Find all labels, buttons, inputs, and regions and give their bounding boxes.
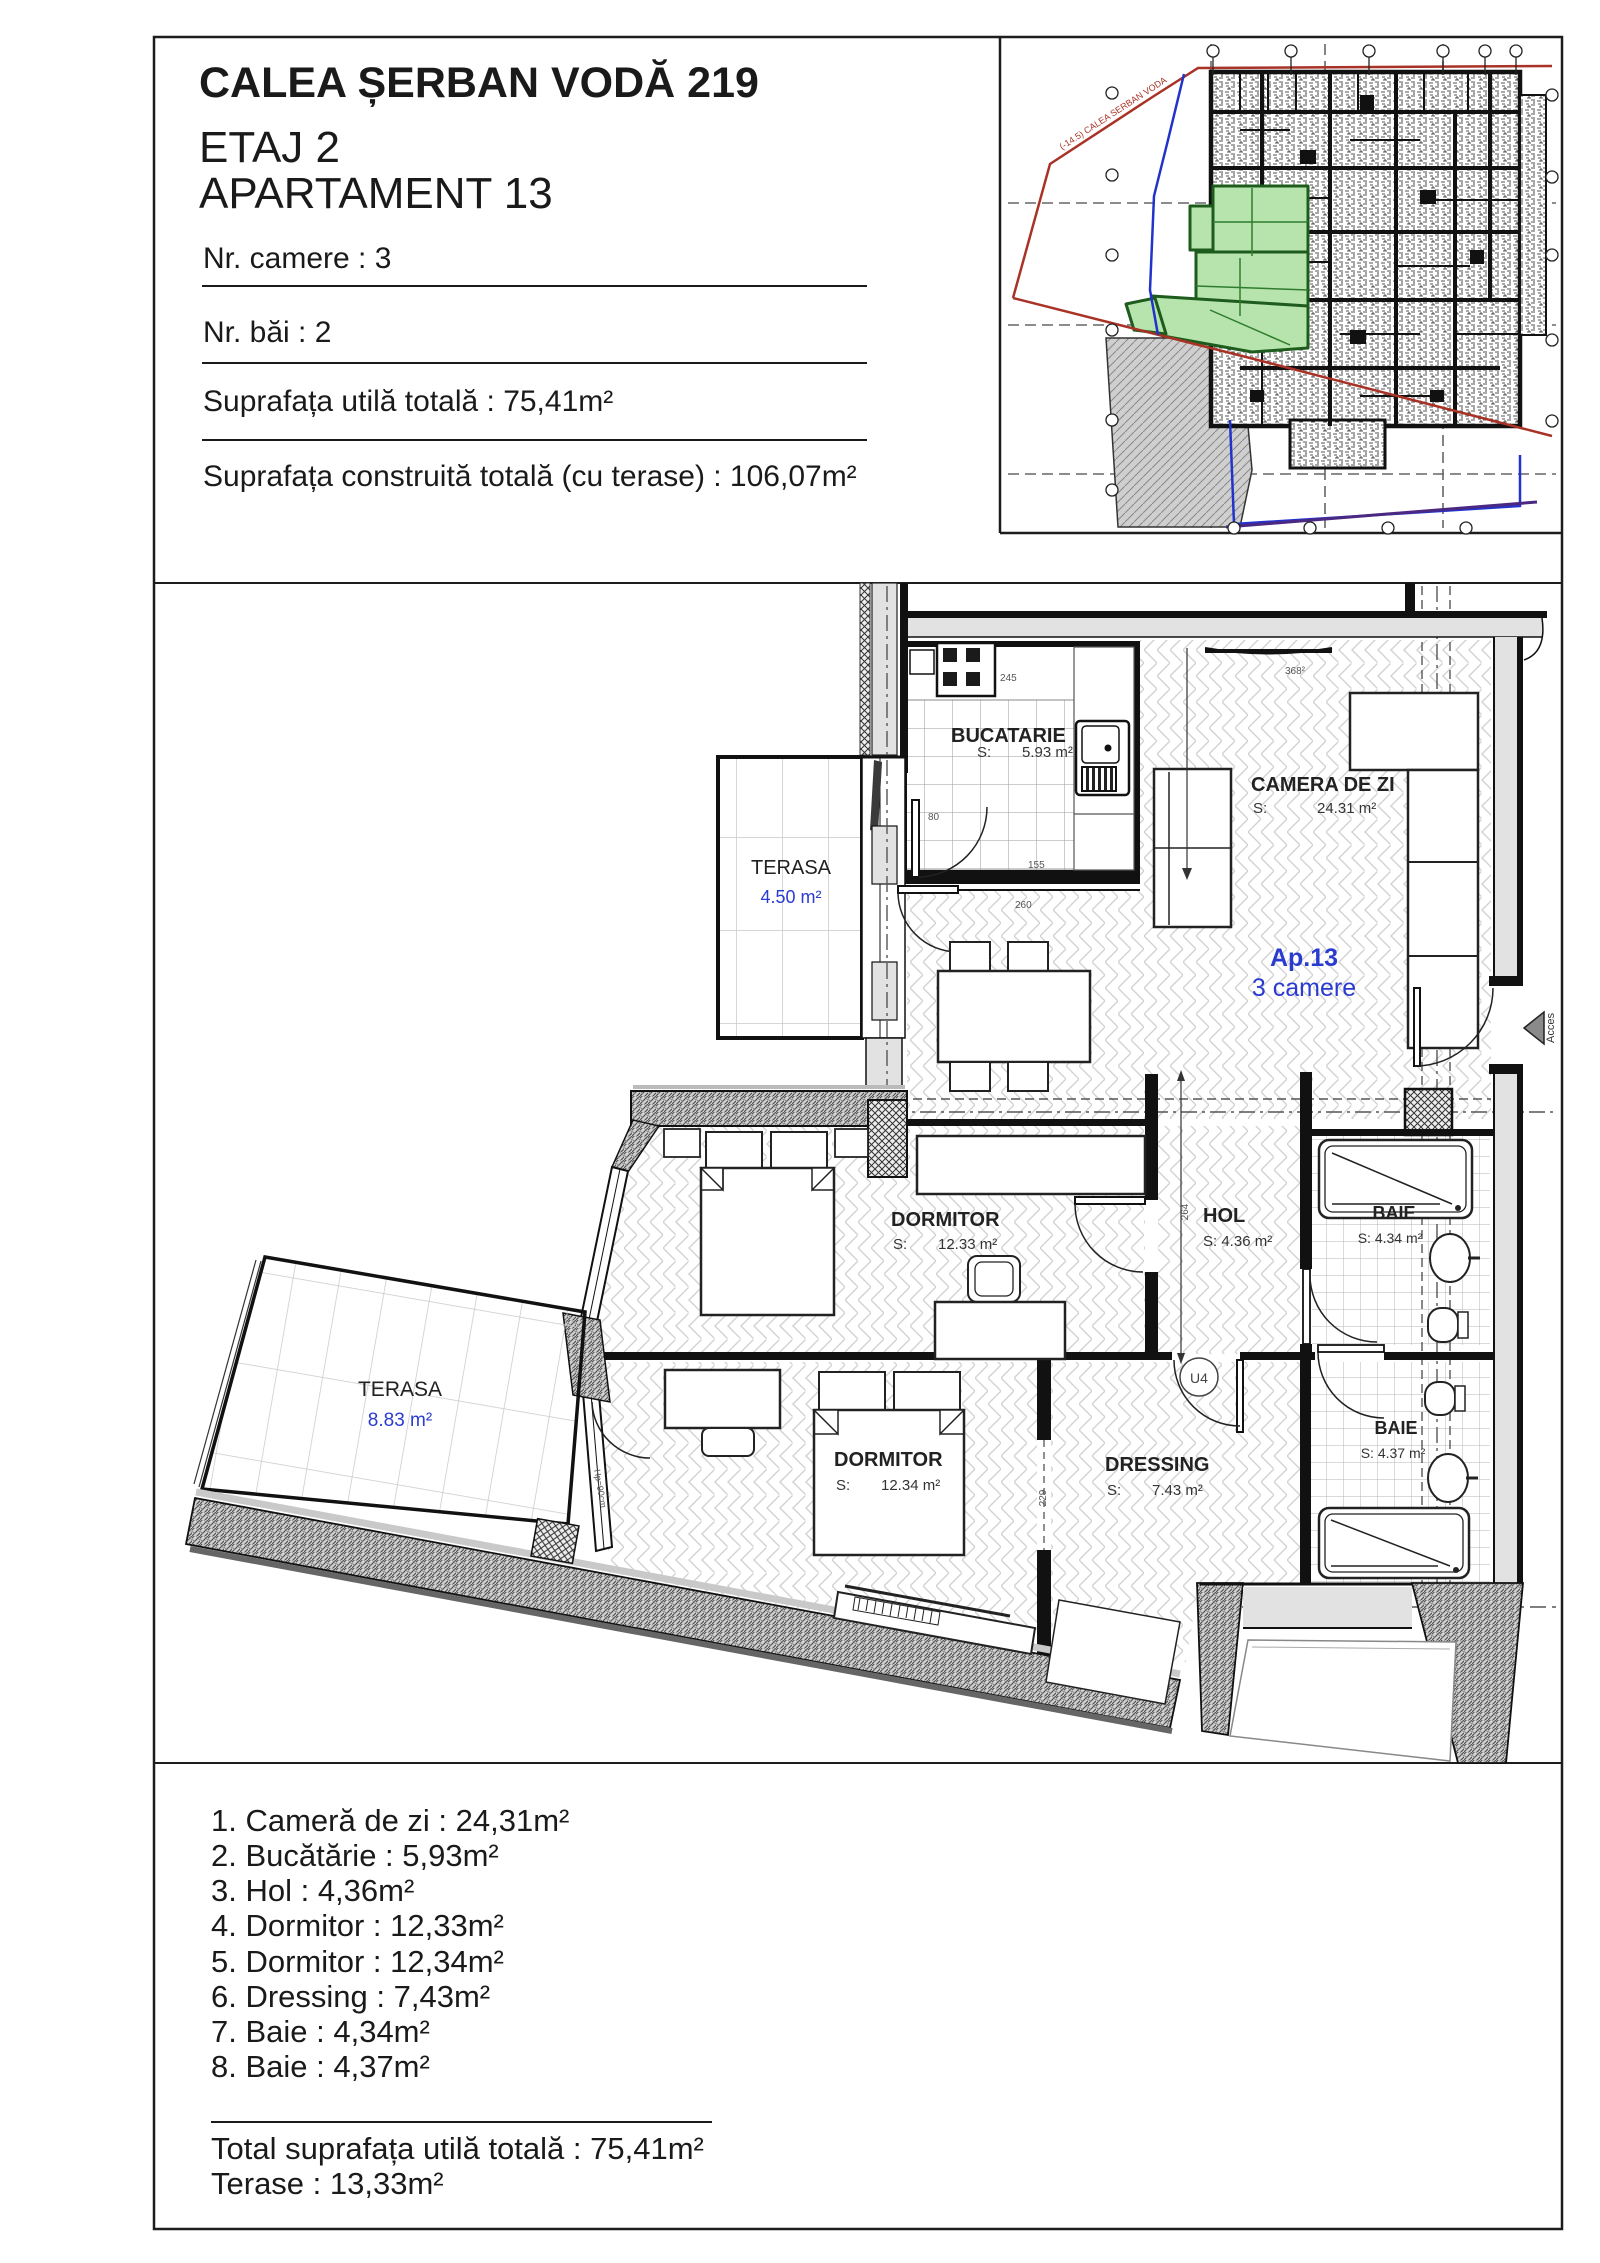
svg-text:Total suprafața utilă totală :: Total suprafața utilă totală : 75,41m²	[211, 2131, 704, 2166]
svg-text:Ap.13: Ap.13	[1270, 944, 1338, 972]
svg-text:264: 264	[1180, 1203, 1191, 1220]
svg-text:DRESSING: DRESSING	[1105, 1454, 1209, 1476]
svg-text:TERASA: TERASA	[358, 1378, 442, 1401]
svg-text:Terase : 13,33m²: Terase : 13,33m²	[211, 2166, 444, 2201]
svg-text:Suprafața construită totală (c: Suprafața construită totală (cu terase) …	[203, 460, 857, 493]
svg-text:TERASA: TERASA	[751, 857, 832, 879]
svg-text:S: 4.34 m²: S: 4.34 m²	[1358, 1230, 1423, 1246]
svg-text:ETAJ 2: ETAJ 2	[199, 123, 340, 172]
svg-text:Acces: Acces	[1545, 1013, 1557, 1043]
svg-text:229: 229	[1038, 1489, 1049, 1506]
svg-text:1. Cameră de zi : 24,31m²: 1. Cameră de zi : 24,31m²	[211, 1803, 569, 1838]
svg-text:S:: S:	[1107, 1482, 1121, 1499]
svg-text:3. Hol : 4,36m²: 3. Hol : 4,36m²	[211, 1873, 414, 1908]
svg-text:155: 155	[1028, 860, 1045, 871]
svg-text:S:: S:	[836, 1477, 850, 1494]
svg-text:Nr. camere : 3: Nr. camere : 3	[203, 242, 391, 275]
svg-text:APARTAMENT 13: APARTAMENT 13	[199, 169, 553, 218]
svg-text:CALEA ȘERBAN VODĂ 219: CALEA ȘERBAN VODĂ 219	[199, 59, 759, 107]
svg-text:CAMERA DE ZI: CAMERA DE ZI	[1251, 774, 1395, 796]
svg-text:Suprafața utilă totală : 75,41: Suprafața utilă totală : 75,41m²	[203, 385, 613, 418]
svg-text:4. Dormitor : 12,33m²: 4. Dormitor : 12,33m²	[211, 1908, 504, 1943]
svg-text:U4: U4	[1190, 1370, 1208, 1386]
svg-text:80: 80	[928, 812, 940, 823]
svg-text:12.33 m²: 12.33 m²	[938, 1236, 997, 1253]
svg-text:7. Baie : 4,34m²: 7. Baie : 4,34m²	[211, 2014, 430, 2049]
svg-text:368²: 368²	[1285, 666, 1306, 677]
svg-text:DORMITOR: DORMITOR	[891, 1209, 1000, 1231]
svg-text:5. Dormitor : 12,34m²: 5. Dormitor : 12,34m²	[211, 1944, 504, 1979]
svg-text:8.83 m²: 8.83 m²	[368, 1410, 432, 1431]
svg-text:4.50 m²: 4.50 m²	[760, 887, 821, 907]
svg-text:DORMITOR: DORMITOR	[834, 1449, 943, 1471]
svg-text:3 camere: 3 camere	[1252, 974, 1356, 1002]
svg-text:245: 245	[1000, 673, 1017, 684]
svg-text:S: 4.36 m²: S: 4.36 m²	[1203, 1233, 1272, 1250]
svg-text:S: 4.37 m²: S: 4.37 m²	[1361, 1445, 1426, 1461]
svg-text:6. Dressing : 7,43m²: 6. Dressing : 7,43m²	[211, 1979, 490, 2014]
svg-text:BAIE: BAIE	[1372, 1203, 1415, 1223]
svg-text:S:: S:	[977, 744, 991, 761]
svg-text:HOL: HOL	[1203, 1205, 1245, 1227]
svg-text:12.34 m²: 12.34 m²	[881, 1477, 940, 1494]
svg-text:S:: S:	[893, 1236, 907, 1253]
svg-text:24.31 m²: 24.31 m²	[1317, 800, 1376, 817]
svg-text:BAIE: BAIE	[1374, 1418, 1417, 1438]
svg-text:260: 260	[1015, 900, 1032, 911]
svg-text:2. Bucătărie : 5,93m²: 2. Bucătărie : 5,93m²	[211, 1838, 499, 1873]
svg-text:S:: S:	[1253, 800, 1267, 817]
svg-text:7.43 m²: 7.43 m²	[1152, 1482, 1203, 1499]
svg-text:5.93 m²: 5.93 m²	[1022, 744, 1073, 761]
svg-text:8. Baie : 4,37m²: 8. Baie : 4,37m²	[211, 2049, 430, 2084]
svg-text:Nr. băi : 2: Nr. băi : 2	[203, 316, 331, 349]
